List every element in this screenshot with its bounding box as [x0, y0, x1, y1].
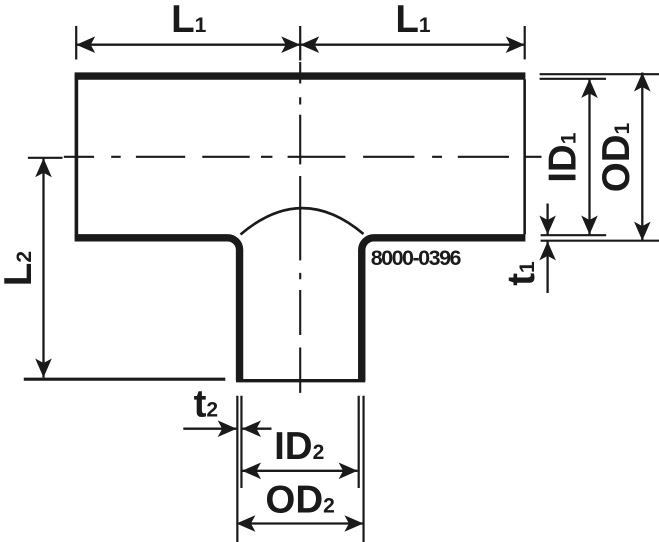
svg-text:OD1: OD1: [595, 122, 638, 192]
svg-text:t2: t2: [194, 383, 219, 426]
svg-text:ID1: ID1: [542, 132, 585, 183]
svg-text:L1: L1: [171, 0, 207, 41]
svg-text:ID2: ID2: [274, 425, 324, 468]
svg-text:OD2: OD2: [265, 478, 334, 521]
svg-text:t1: t1: [500, 261, 543, 286]
svg-text:L2: L2: [0, 251, 40, 286]
svg-text:8000-0396: 8000-0396: [371, 246, 462, 270]
svg-text:L1: L1: [395, 0, 431, 41]
